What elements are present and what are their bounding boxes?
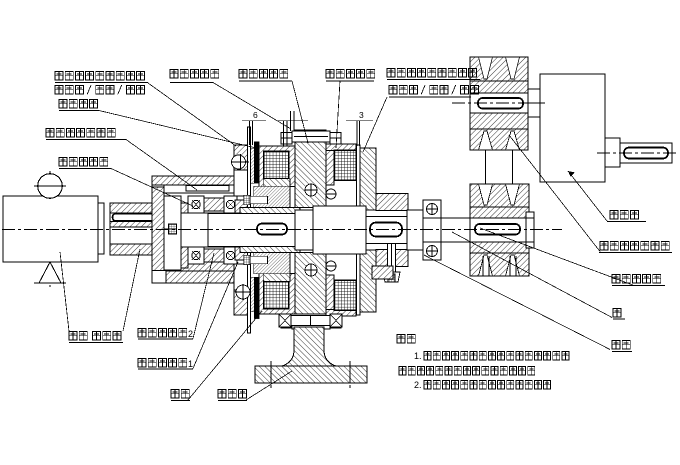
svg-text:2: 2 (188, 329, 193, 339)
svg-text:6: 6 (253, 110, 258, 120)
svg-text:3: 3 (359, 110, 364, 120)
svg-text:1.: 1. (414, 351, 422, 361)
svg-text:2.: 2. (414, 380, 422, 390)
svg-text:1: 1 (188, 359, 193, 369)
